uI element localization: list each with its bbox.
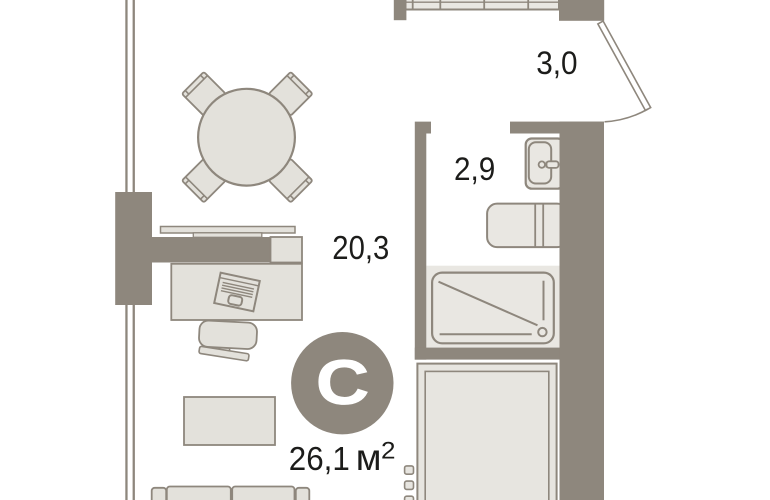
svg-text:2,9: 2,9 (454, 151, 495, 187)
svg-text:С: С (316, 348, 369, 418)
svg-text:3,0: 3,0 (536, 45, 577, 81)
svg-text:2: 2 (381, 437, 396, 464)
svg-text:м: м (356, 436, 382, 478)
svg-text:26,1: 26,1 (289, 441, 350, 478)
svg-text:20,3: 20,3 (332, 230, 389, 267)
